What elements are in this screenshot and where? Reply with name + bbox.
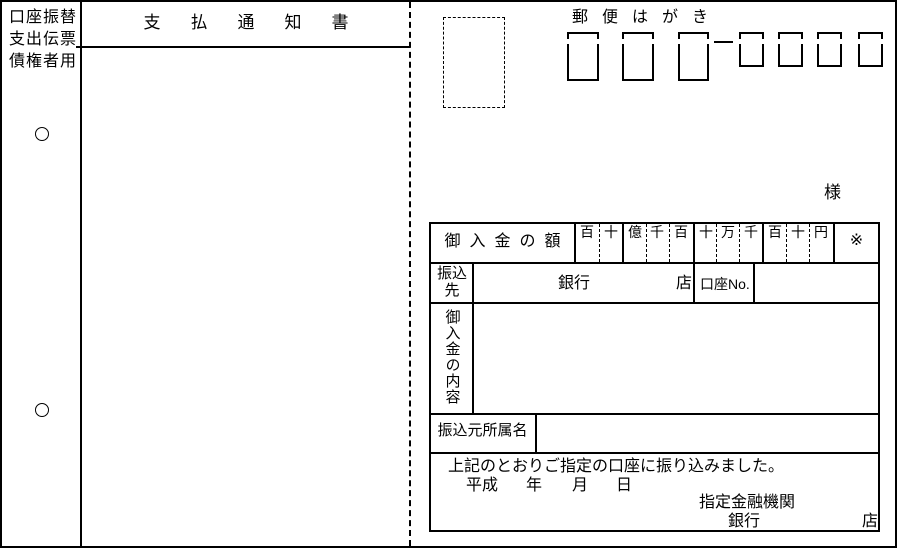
postal-code-box-4 xyxy=(739,32,764,67)
year-label: 年 xyxy=(526,477,542,495)
digit-header-10: 十 xyxy=(791,225,805,240)
digit-header-8: 千 xyxy=(744,225,758,240)
digit-dash-line-1 xyxy=(599,224,600,262)
postal-code-box-7 xyxy=(858,32,883,67)
month-label: 月 xyxy=(572,477,588,495)
postcard-title: 郵便はがき xyxy=(572,9,722,27)
stub-title: 口座振替 支出伝票 債権者用 xyxy=(9,7,81,73)
note-mark: ※ xyxy=(833,232,880,250)
digit-header-3: 億 xyxy=(628,225,642,240)
digit-dash-line-6 xyxy=(786,224,787,262)
content-cell-divider xyxy=(472,302,474,415)
stub-title-line-3: 債権者用 xyxy=(9,51,81,73)
table-row-line-3 xyxy=(429,413,880,415)
payment-notice-form: 口座振替 支出伝票 債権者用 支払通知書 郵便はがき 様 xyxy=(0,0,897,548)
sender-label: 振込元所属名 xyxy=(429,423,536,440)
day-label: 日 xyxy=(616,477,632,495)
digit-header-1: 百 xyxy=(580,225,594,240)
account-cell-right-line xyxy=(753,262,755,304)
stamp-box xyxy=(443,17,505,108)
digit-group-line-1 xyxy=(622,222,624,264)
digit-header-11: 円 xyxy=(814,225,828,240)
footer-message: 上記のとおりご指定の口座に振り込みました。 xyxy=(448,458,784,476)
institution-label: 指定金融機関 xyxy=(699,494,795,512)
payee-label: 振込先 xyxy=(431,265,473,299)
account-cell-left-line xyxy=(693,262,695,304)
stub-title-line-2: 支出伝票 xyxy=(9,29,81,51)
era-label: 平成 xyxy=(466,477,498,495)
digit-header-6: 十 xyxy=(699,225,713,240)
stub-divider-line xyxy=(80,2,82,546)
amount-label: 御入金の額 xyxy=(431,233,574,251)
table-row-line-2 xyxy=(429,302,880,304)
institution-bank-label: 銀行 xyxy=(728,513,760,531)
notice-title: 支払通知書 xyxy=(82,14,410,33)
branch-label: 店 xyxy=(676,275,692,293)
content-label: 御入金の内容 xyxy=(443,309,460,411)
digit-dash-line-7 xyxy=(809,224,810,262)
digit-header-9: 百 xyxy=(768,225,782,240)
digit-dash-line-5 xyxy=(739,224,740,262)
amount-cell-divider xyxy=(574,222,576,264)
digit-dash-line-4 xyxy=(716,224,717,262)
perforation-line xyxy=(409,2,411,546)
postal-code-box-5 xyxy=(778,32,803,67)
digit-group-line-2 xyxy=(693,222,695,264)
institution-branch-label: 店 xyxy=(862,513,878,531)
notice-title-underline xyxy=(76,46,410,48)
account-no-label: 口座No. xyxy=(700,277,750,292)
bank-label: 銀行 xyxy=(558,275,590,293)
digit-header-4: 千 xyxy=(650,225,664,240)
addressee-suffix: 様 xyxy=(824,184,841,203)
digit-dash-line-3 xyxy=(669,224,670,262)
postal-code-box-6 xyxy=(817,32,842,67)
digit-header-2: 十 xyxy=(604,225,618,240)
stub-title-line-1: 口座振替 xyxy=(9,7,81,29)
postal-code-hyphen xyxy=(714,41,733,43)
seal-circle-bottom xyxy=(35,403,49,417)
digit-group-line-3 xyxy=(762,222,764,264)
table-row-line-4 xyxy=(429,452,880,454)
digit-header-7: 万 xyxy=(721,225,735,240)
digit-header-5: 百 xyxy=(674,225,688,240)
seal-circle-top xyxy=(35,127,49,141)
table-row-line-1 xyxy=(429,262,880,264)
digit-dash-line-2 xyxy=(646,224,647,262)
